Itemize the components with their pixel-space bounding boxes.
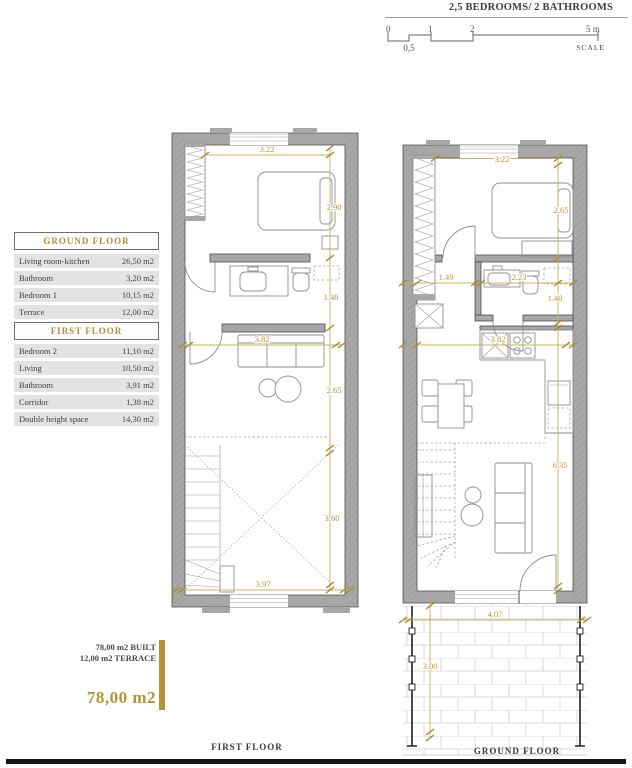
room-label: Double height space bbox=[19, 414, 88, 424]
room-label: Corridor bbox=[19, 397, 48, 407]
room-label: Bathroom bbox=[19, 273, 53, 283]
tv-cabinet bbox=[415, 475, 432, 537]
terrace-area: 12,00 m2 TERRACE bbox=[40, 653, 156, 664]
scale-bar-line bbox=[388, 35, 598, 41]
scale-bar: 0 1 2 5 m 0,5 SCALE bbox=[383, 22, 629, 54]
dim-living-depth: 6.35 bbox=[553, 460, 568, 470]
area-summary: 78,00 m2 BUILT 12,00 m2 TERRACE bbox=[40, 642, 156, 664]
room-area: 10,15 m2 bbox=[122, 290, 154, 300]
ground-floor-plan: 3.22 2.65 1.49 2.23 1.40 3.82 6.35 4.07 … bbox=[398, 138, 594, 763]
scale-caption: SCALE bbox=[576, 43, 605, 52]
legend-row: Living room-kitchen 26,50 m2 bbox=[14, 254, 159, 268]
room-area: 1,38 m2 bbox=[126, 397, 154, 407]
room-area: 10,50 m2 bbox=[122, 363, 154, 373]
stairs bbox=[185, 445, 234, 592]
legend-first-title: FIRST FLOOR bbox=[14, 322, 159, 340]
dim-terrace-width: 4.07 bbox=[488, 609, 503, 619]
room-area: 14,30 m2 bbox=[122, 414, 154, 424]
dim-living-depth: 2.65 bbox=[327, 385, 342, 395]
room-label: Living room-kitchen bbox=[19, 256, 90, 266]
dim-bedroom-depth: 2.65 bbox=[554, 205, 569, 215]
side-tables bbox=[259, 376, 301, 402]
legend-row: Double height space 14,30 m2 bbox=[14, 412, 159, 426]
doors bbox=[185, 262, 222, 364]
wardrobe bbox=[185, 143, 205, 221]
ground-floor-caption: GROUND FLOOR bbox=[442, 746, 592, 756]
room-label: Living bbox=[19, 363, 42, 373]
bathroom-fixtures bbox=[484, 266, 570, 294]
scale-tick-1: 1 bbox=[428, 24, 433, 34]
scale-tick-2: 2 bbox=[470, 24, 475, 34]
scale-half-label: 0,5 bbox=[403, 43, 415, 53]
legend-row: Corridor 1,38 m2 bbox=[14, 395, 159, 409]
dim-width-bottom: 3.97 bbox=[256, 579, 271, 589]
room-area: 26,50 m2 bbox=[122, 256, 154, 266]
room-area: 3,91 m2 bbox=[126, 380, 154, 390]
dining-set bbox=[422, 380, 472, 428]
legend-row: Bedroom 2 11,10 m2 bbox=[14, 344, 159, 358]
room-area: 12,00 m2 bbox=[122, 307, 154, 317]
sofa bbox=[238, 335, 324, 367]
dim-bathroom-width: 2.23 bbox=[512, 272, 527, 282]
sheet-title: 2,5 BEDROOMS/ 2 BATHROOMS bbox=[330, 2, 613, 13]
dim-width-top: 3.22 bbox=[495, 154, 510, 164]
total-area: 78,00 m2 bbox=[40, 688, 156, 708]
legend-row: Bedroom 1 10,15 m2 bbox=[14, 288, 159, 302]
room-label: Bathroom bbox=[19, 380, 53, 390]
bed bbox=[492, 183, 573, 257]
floorplan-sheet: 2,5 BEDROOMS/ 2 BATHROOMS 0 1 2 5 m 0,5 … bbox=[0, 0, 632, 768]
room-area: 11,10 m2 bbox=[122, 346, 154, 356]
footer-rule bbox=[6, 759, 626, 764]
area-legend: GROUND FLOOR Living room-kitchen 26,50 m… bbox=[14, 232, 159, 429]
legend-row: Living 10,50 m2 bbox=[14, 361, 159, 375]
side-tables bbox=[461, 487, 483, 526]
legend-row: Bathroom 3,91 m2 bbox=[14, 378, 159, 392]
dim-bathroom-depth: 1.40 bbox=[548, 293, 563, 303]
room-label: Bedroom 2 bbox=[19, 346, 57, 356]
sofa bbox=[495, 463, 532, 553]
first-floor-plan: 3.22 2.90 1.40 3.82 2.65 3.60 3.97 bbox=[168, 126, 364, 618]
kitchen bbox=[480, 330, 573, 440]
dim-corridor-width: 1.49 bbox=[439, 272, 454, 282]
dim-bathroom-depth: 1.40 bbox=[324, 292, 339, 302]
wardrobe bbox=[413, 155, 443, 328]
built-area: 78,00 m2 BUILT bbox=[40, 642, 156, 653]
dim-bedroom-depth: 2.90 bbox=[327, 202, 342, 212]
double-height-cross bbox=[185, 445, 338, 590]
dim-kitchen-width: 3.82 bbox=[491, 334, 506, 344]
room-area: 3,20 m2 bbox=[126, 273, 154, 283]
room-label: Terrace bbox=[19, 307, 44, 317]
dim-living-width: 3.82 bbox=[255, 334, 270, 344]
legend-row: Terrace 12,00 m2 bbox=[14, 305, 159, 319]
legend-row: Bathroom 3,20 m2 bbox=[14, 271, 159, 285]
dim-void-depth: 3.60 bbox=[325, 513, 340, 523]
legend-ground-title: GROUND FLOOR bbox=[14, 232, 159, 250]
summary-accent-bar bbox=[159, 640, 165, 710]
first-floor-caption: FIRST FLOOR bbox=[172, 742, 322, 752]
room-label: Bedroom 1 bbox=[19, 290, 57, 300]
dim-width-top: 3.22 bbox=[260, 144, 275, 154]
dim-terrace-depth: 3.00 bbox=[423, 661, 438, 671]
title-rule bbox=[385, 17, 628, 18]
